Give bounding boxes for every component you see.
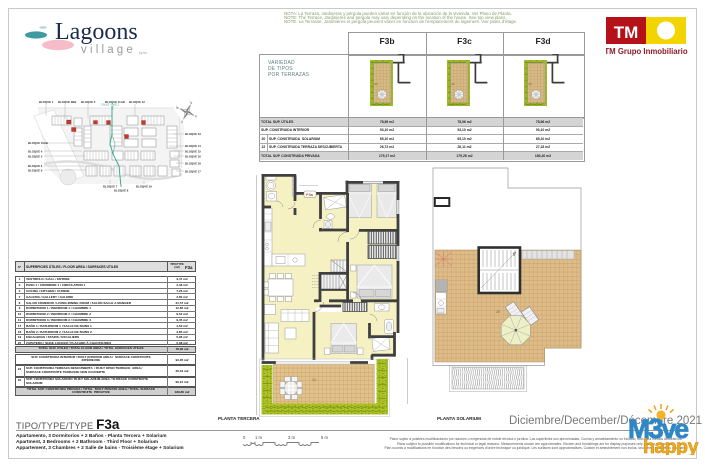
svg-text:BLOQUE 9: BLOQUE 9 <box>28 169 43 173</box>
svg-text:0: 0 <box>243 435 246 440</box>
svg-text:by tm: by tm <box>139 51 147 55</box>
svg-text:BLOQUE 5: BLOQUE 5 <box>28 155 43 159</box>
svg-text:BLOQUE 16: BLOQUE 16 <box>185 155 201 159</box>
svg-text:BLOQUE 12: BLOQUE 12 <box>129 100 145 104</box>
svg-text:BLOQUE 11AB: BLOQUE 11AB <box>105 100 125 104</box>
svg-text:BLOQUE 13: BLOQUE 13 <box>185 132 201 136</box>
svg-text:5 m: 5 m <box>321 435 328 440</box>
svg-text:20: 20 <box>496 310 500 314</box>
svg-text:BLOQUE 19: BLOQUE 19 <box>136 185 152 189</box>
svg-text:TM Grupo Inmobiliario: TM Grupo Inmobiliario <box>606 47 688 56</box>
svg-text:BLOQUE 18: BLOQUE 18 <box>185 162 201 166</box>
svg-text:Lagoons: Lagoons <box>55 19 138 45</box>
svg-text:E: E <box>194 114 198 118</box>
svg-text:22: 22 <box>375 82 379 86</box>
svg-text:BLOQUE 15: BLOQUE 15 <box>185 150 201 154</box>
svg-text:TM: TM <box>614 23 639 42</box>
svg-text:3 m: 3 m <box>288 435 295 440</box>
svg-text:village: village <box>81 44 136 56</box>
svg-text:N: N <box>189 101 193 106</box>
svg-text:happy: happy <box>643 436 699 455</box>
svg-text:BLOQUE 4: BLOQUE 4 <box>28 150 43 154</box>
svg-text:BLOQUE 1: BLOQUE 1 <box>39 100 54 104</box>
svg-text:1 m: 1 m <box>255 435 262 440</box>
svg-text:BLOQUE 3: BLOQUE 3 <box>81 100 96 104</box>
svg-text:BLOQUE 17: BLOQUE 17 <box>185 170 201 174</box>
svg-text:BLOQUE 8: BLOQUE 8 <box>114 189 129 193</box>
svg-text:S: S <box>180 120 184 124</box>
svg-text:BLOQUE 14: BLOQUE 14 <box>185 144 201 148</box>
svg-text:BLOQUE 10AB: BLOQUE 10AB <box>28 141 48 145</box>
svg-text:22: 22 <box>452 82 456 86</box>
svg-text:22: 22 <box>529 82 533 86</box>
svg-text:W: W <box>175 105 179 110</box>
svg-text:24: 24 <box>312 378 316 382</box>
svg-text:BLOQUE 2BB: BLOQUE 2BB <box>58 100 76 104</box>
svg-text:F3a: F3a <box>306 192 314 197</box>
svg-text:BLOQUE 6: BLOQUE 6 <box>28 164 43 168</box>
